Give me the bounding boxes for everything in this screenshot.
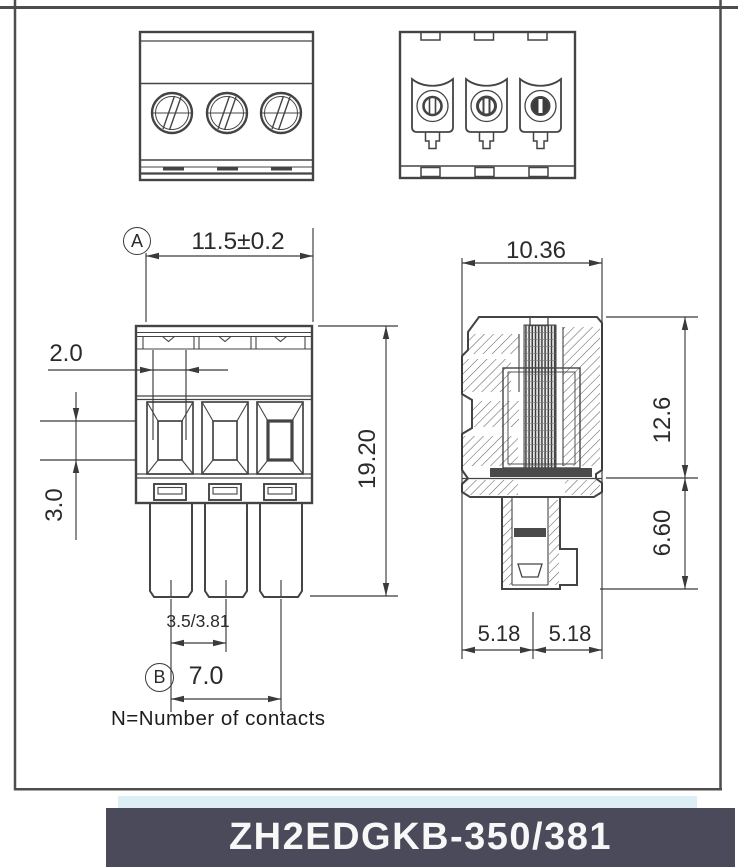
technical-drawing-sheet: A B 11.5±0.2 2.0 3.0 19.20 3.5/3.81 7.0 … — [0, 0, 738, 867]
datum-b-balloon: B — [145, 663, 174, 692]
top-view — [400, 32, 575, 178]
terminal-cell — [520, 79, 561, 149]
dim-body-height: 12.6 — [650, 370, 676, 470]
wire-entry-opening — [202, 402, 248, 474]
dim-width-a: 11.5±0.2 — [173, 228, 303, 256]
contacts-note: N=Number of contacts — [111, 707, 326, 731]
front-view-assembled — [140, 32, 313, 180]
screw-head-icon — [207, 93, 247, 133]
latch-window — [154, 484, 296, 500]
part-number-banner: ZH2EDGKB-350/381 — [106, 808, 735, 867]
dim-side-width: 10.36 — [486, 237, 586, 265]
dim-overall-height: 19.20 — [355, 409, 381, 509]
wire-entry-opening — [257, 402, 303, 474]
plug-pin-outline — [502, 497, 577, 589]
terminal-cell — [466, 79, 507, 149]
dim-end-pitch: 7.0 — [176, 662, 236, 691]
dim-pin-length: 6.60 — [650, 483, 676, 583]
datum-b-label: B — [153, 667, 165, 688]
drawing-frame — [0, 0, 738, 790]
dim-half-width-right: 5.18 — [535, 621, 605, 647]
dim-half-width-left: 5.18 — [464, 621, 534, 647]
plug-section-view — [462, 317, 602, 589]
plug-front-view — [136, 326, 312, 597]
datum-a-label: A — [131, 231, 143, 252]
terminal-cell — [412, 79, 453, 149]
dim-slot-height: 3.0 — [42, 455, 68, 555]
screw-head-icon — [152, 93, 192, 133]
datum-a-balloon: A — [123, 227, 151, 255]
screw-head-icon — [261, 93, 301, 133]
dim-slot-width: 2.0 — [36, 340, 96, 368]
banner-highlight-strip — [118, 796, 697, 808]
screw-thread — [524, 325, 556, 468]
dim-pitch: 3.5/3.81 — [148, 611, 248, 632]
part-number: ZH2EDGKB-350/381 — [229, 816, 612, 859]
plug-leg — [150, 503, 302, 597]
